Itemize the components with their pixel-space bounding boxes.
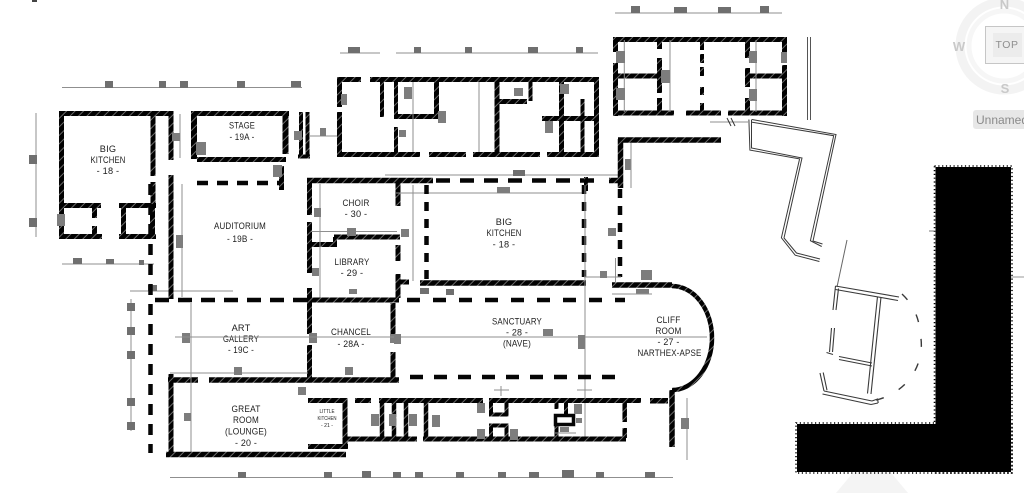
svg-text:N: N (1000, 0, 1009, 12)
svg-text:- 29 -: - 29 - (341, 268, 364, 278)
svg-text:- 18 -: - 18 - (493, 240, 516, 250)
svg-text:CHANCEL: CHANCEL (331, 327, 371, 337)
svg-text:BIG: BIG (100, 144, 116, 154)
svg-text:- 30 -: - 30 - (345, 209, 368, 219)
svg-text:TOP: TOP (996, 39, 1019, 51)
svg-text:- 19A -: - 19A - (230, 132, 255, 142)
svg-text:AUDITORIUM: AUDITORIUM (214, 221, 266, 231)
svg-text:- 28A -: - 28A - (338, 339, 365, 349)
svg-text:ART: ART (232, 323, 251, 333)
svg-text:SANCTUARY: SANCTUARY (492, 317, 542, 327)
svg-text:- 18 -: - 18 - (97, 166, 120, 176)
svg-text:- 27 -: - 27 - (658, 337, 680, 347)
svg-text:- 19C -: - 19C - (228, 345, 254, 355)
svg-text:S: S (1001, 81, 1010, 96)
svg-text:LIBRARY: LIBRARY (335, 257, 370, 267)
svg-text:(NAVE): (NAVE) (503, 339, 531, 349)
svg-text:- 20 -: - 20 - (235, 438, 257, 448)
svg-text:ROOM: ROOM (656, 326, 682, 336)
svg-text:LITTLE: LITTLE (320, 409, 335, 415)
svg-text:CLIFF: CLIFF (657, 315, 681, 325)
svg-text:- 21 -: - 21 - (321, 423, 333, 429)
svg-text:GREAT: GREAT (232, 404, 261, 414)
svg-text:- 19B -: - 19B - (227, 234, 253, 244)
svg-text:Unnamed: Unnamed (976, 113, 1024, 127)
svg-text:KITCHEN: KITCHEN (318, 416, 337, 422)
svg-text:NARTHEX-APSE: NARTHEX-APSE (638, 348, 702, 358)
svg-text:GALLERY: GALLERY (223, 334, 259, 344)
svg-text:- 28 -: - 28 - (506, 328, 528, 338)
svg-text:KITCHEN: KITCHEN (487, 228, 522, 238)
svg-text:BIG: BIG (496, 217, 512, 227)
svg-text:W: W (953, 39, 966, 54)
svg-text:KITCHEN: KITCHEN (91, 155, 126, 165)
svg-text:STAGE: STAGE (229, 121, 255, 131)
svg-text:ROOM: ROOM (233, 415, 259, 425)
svg-text:CHOIR: CHOIR (343, 198, 370, 208)
svg-text:(LOUNGE): (LOUNGE) (225, 427, 267, 437)
